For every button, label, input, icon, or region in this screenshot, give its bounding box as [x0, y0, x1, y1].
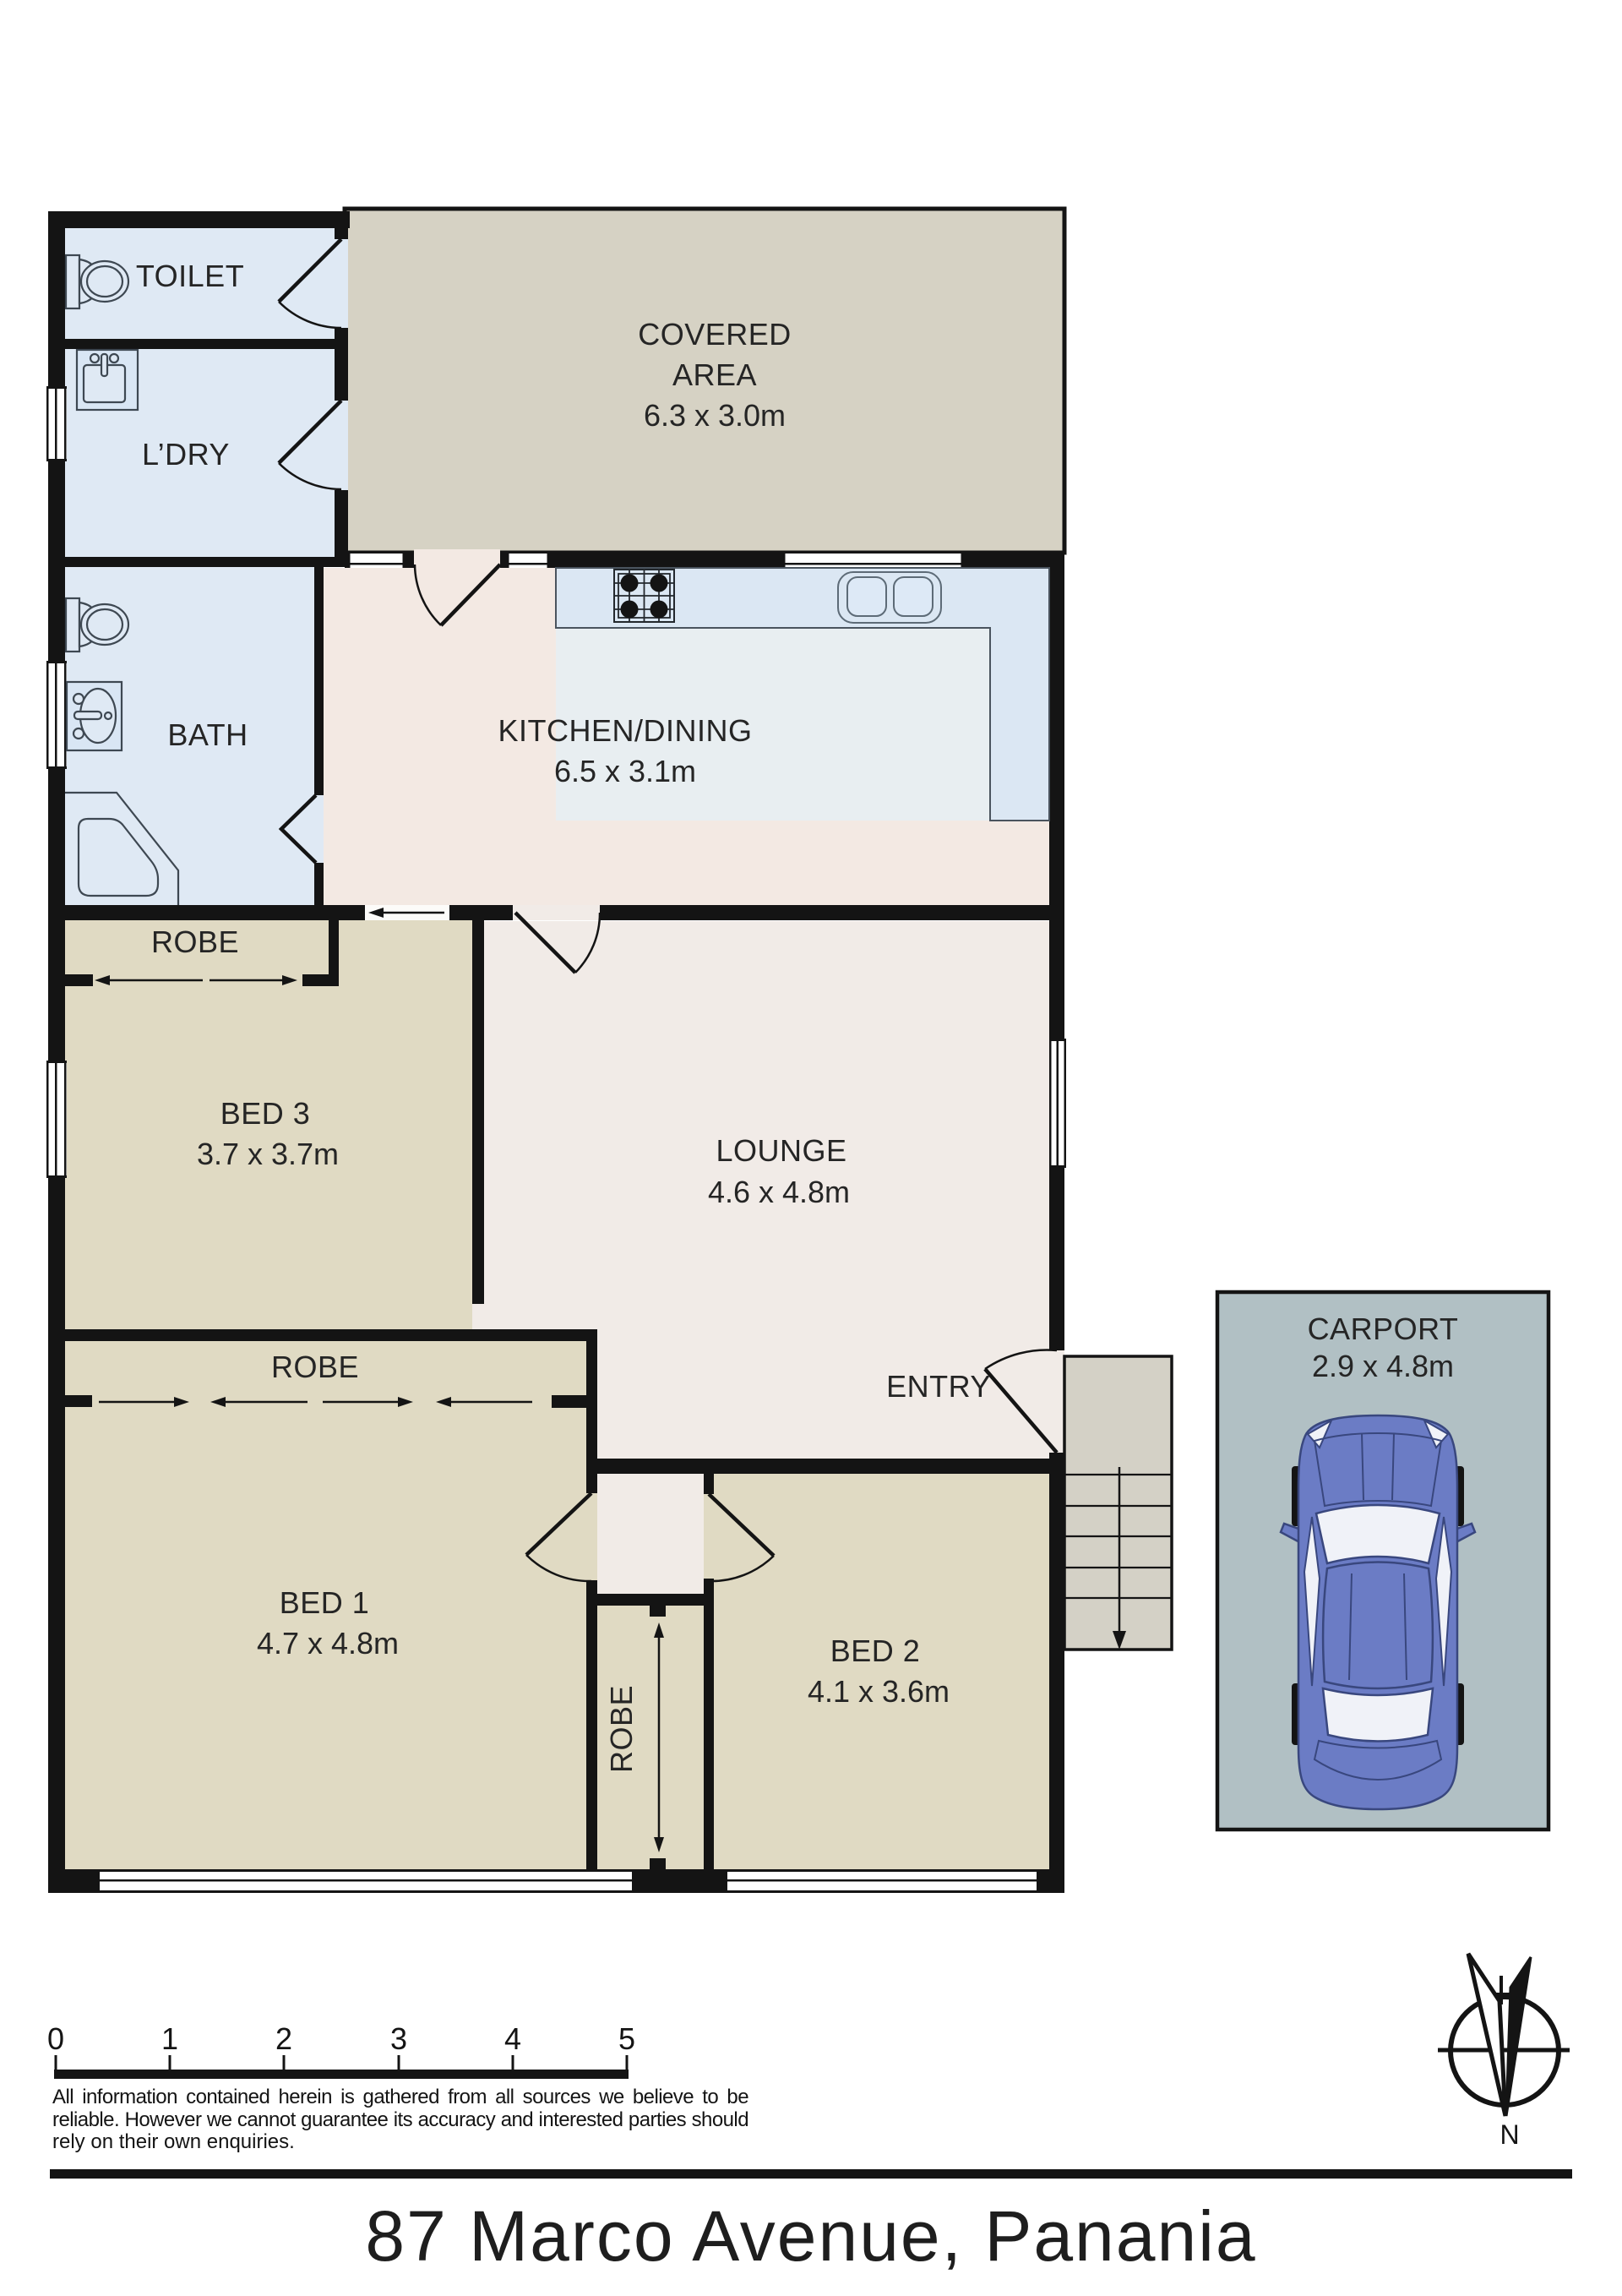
svg-text:2: 2 — [275, 2021, 292, 2056]
svg-text:2.9 x 4.8m: 2.9 x 4.8m — [1312, 1349, 1454, 1383]
svg-text:CARPORT: CARPORT — [1308, 1312, 1459, 1346]
svg-text:BATH: BATH — [167, 717, 248, 752]
svg-text:ROBE: ROBE — [271, 1350, 359, 1384]
svg-text:4.7 x 4.8m: 4.7 x 4.8m — [257, 1626, 399, 1661]
svg-text:KITCHEN/DINING: KITCHEN/DINING — [498, 713, 752, 748]
svg-text:AREA: AREA — [672, 357, 757, 392]
svg-text:L’DRY: L’DRY — [142, 437, 230, 472]
svg-text:COVERED: COVERED — [638, 317, 792, 352]
svg-text:1: 1 — [161, 2021, 178, 2056]
svg-text:3.7 x 3.7m: 3.7 x 3.7m — [197, 1137, 339, 1171]
svg-text:4.6 x 4.8m: 4.6 x 4.8m — [708, 1175, 850, 1209]
svg-text:3: 3 — [390, 2021, 407, 2056]
svg-text:4: 4 — [504, 2021, 521, 2056]
svg-text:0: 0 — [47, 2021, 64, 2056]
svg-text:6.3 x 3.0m: 6.3 x 3.0m — [644, 398, 786, 433]
svg-text:BED 2: BED 2 — [830, 1633, 921, 1668]
svg-text:5: 5 — [618, 2021, 635, 2056]
svg-text:ENTRY: ENTRY — [886, 1369, 991, 1404]
svg-text:N: N — [1500, 2119, 1519, 2150]
svg-text:LOUNGE: LOUNGE — [716, 1133, 846, 1168]
svg-text:6.5 x 3.1m: 6.5 x 3.1m — [554, 754, 696, 788]
svg-text:ROBE: ROBE — [604, 1685, 639, 1773]
svg-text:BED 1: BED 1 — [280, 1585, 370, 1620]
svg-text:TOILET: TOILET — [136, 259, 244, 293]
svg-text:ROBE: ROBE — [151, 924, 239, 959]
svg-text:BED 3: BED 3 — [220, 1096, 311, 1131]
svg-text:4.1 x 3.6m: 4.1 x 3.6m — [808, 1674, 950, 1709]
